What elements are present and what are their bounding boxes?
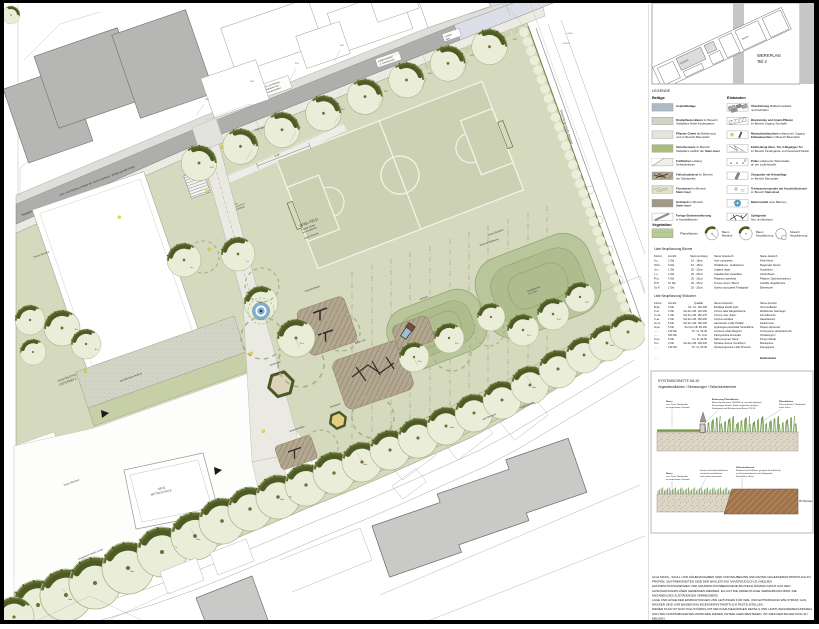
svg-text:Name botanisch: Name botanisch bbox=[714, 254, 734, 258]
svg-text:C.ma.: C.ma. bbox=[654, 313, 661, 317]
svg-text:Pr.P.: Pr.P. bbox=[210, 167, 215, 169]
svg-text:neu: 10cm Oberboden: neu: 10cm Oberboden bbox=[666, 403, 689, 406]
svg-text:2 Stk: 2 Stk bbox=[668, 317, 675, 321]
svg-text:SYSTEMSCHNITTE M1:20: SYSTEMSCHNITTE M1:20 bbox=[658, 379, 699, 383]
svg-text:Immergrüne Heckenkirsche: Immergrüne Heckenkirsche bbox=[760, 329, 792, 333]
svg-text:und im Bereich Baumplatz: und im Bereich Baumplatz bbox=[676, 135, 710, 139]
svg-text:+412.0: +412.0 bbox=[566, 33, 574, 35]
svg-text:4 Stk: 4 Stk bbox=[668, 309, 675, 313]
svg-text:GRUNDSTÜCKSGRENZEN UND GRU: GRUNDSTÜCKSGRENZEN UND GRUNDSTÜCKSBEZOGE… bbox=[652, 584, 790, 588]
svg-text:Obst: Obst bbox=[363, 463, 368, 466]
svg-text:Pachysandra terminalis: Pachysandra terminalis bbox=[714, 333, 742, 337]
svg-text:5 Stk: 5 Stk bbox=[668, 321, 675, 325]
svg-text:in Asphaltflächen: in Asphaltflächen bbox=[676, 217, 698, 221]
svg-text:im verdichteten Zustand: im verdichteten Zustand bbox=[666, 406, 690, 409]
svg-text:Gebäudekante: Gebäudekante bbox=[676, 163, 695, 167]
svg-text:und Fahrräder: und Fahrräder bbox=[751, 108, 769, 112]
svg-text:Einbauleuchten im Bereich Baum: Einbauleuchten im Bereich Baumplatz bbox=[751, 135, 800, 139]
svg-text:Sol.3xv.mB. 150-175: Sol.3xv.mB. 150-175 bbox=[683, 313, 707, 317]
svg-text:PRÜFEN; UNSTIMMIGKEITEN SIND D: PRÜFEN; UNSTIMMIGKEITEN SIND DER BAULEIT… bbox=[652, 580, 773, 584]
svg-text:Pr.P.: Pr.P. bbox=[250, 81, 255, 83]
svg-text:Platanus acerifolia: Platanus acerifolia bbox=[714, 277, 736, 281]
svg-text:16 - 18cm: 16 - 18cm bbox=[691, 259, 704, 263]
svg-text:an der Laufenstraße: an der Laufenstraße bbox=[751, 163, 777, 167]
svg-text:vor Hand nacharbeiten: vor Hand nacharbeiten bbox=[700, 472, 723, 475]
svg-text:Ju.r.: Ju.r. bbox=[654, 268, 659, 272]
svg-text:A.c.: A.c. bbox=[654, 259, 659, 263]
svg-text:im Bereich Kindergarten und Fe: im Bereich Kindergarten und Feuerwehrzuf… bbox=[751, 149, 809, 153]
svg-text:Qualität: Qualität bbox=[694, 301, 703, 305]
svg-text:Friesenräger Einbau, Beton ang: Friesenräger Einbau, Beton angleichig ve… bbox=[712, 404, 759, 407]
svg-text:Stein-Insel: Stein-Insel bbox=[676, 204, 691, 208]
svg-text:Stellplätze Nähe Kindergarten: Stellplätze Nähe Kindergarten bbox=[676, 122, 715, 126]
svg-text:Pl.a.: Pl.a. bbox=[455, 343, 459, 345]
svg-text:der Spielgeräte: der Spielgeräte bbox=[676, 176, 696, 180]
svg-text:Bodendecker: Bodendecker bbox=[760, 356, 776, 360]
svg-text:Obst: Obst bbox=[68, 598, 73, 601]
svg-text:Kürzel: Kürzel bbox=[654, 254, 662, 258]
svg-text:mind. 40cm: mind. 40cm bbox=[779, 407, 790, 409]
svg-text:Neu und Bestand: Neu und Bestand bbox=[751, 217, 773, 221]
svg-text:So.F.: So.F. bbox=[654, 286, 660, 290]
svg-text:ALLE MASS-, SACH- UND HÖHENANG: ALLE MASS-, SACH- UND HÖHENANGABEN SIND … bbox=[652, 575, 811, 579]
svg-text:B.da.: B.da. bbox=[654, 305, 660, 309]
svg-text:H.mo.: H.mo. bbox=[654, 321, 661, 325]
svg-text:20 - 25cm: 20 - 25cm bbox=[691, 281, 704, 285]
svg-text:Eberesche: Eberesche bbox=[760, 286, 773, 290]
svg-text:Fundament und Rückenstütze Bet: Fundament und Rückenstütze Beton C12/15 bbox=[712, 407, 756, 410]
svg-text:Anzahl: Anzahl bbox=[668, 301, 676, 305]
svg-text:Vegetation: Vegetation bbox=[652, 222, 672, 227]
svg-text:ANGABEN DES ZUSTÄNDIGEN VERMES: ANGABEN DES ZUSTÄNDIGEN VERMESSERS. bbox=[652, 593, 719, 597]
svg-text:1 Stk: 1 Stk bbox=[668, 268, 675, 272]
svg-text:H.pa.: H.pa. bbox=[654, 325, 660, 329]
svg-text:Pr.P.: Pr.P. bbox=[557, 319, 562, 321]
svg-text:Stammumfang: Stammumfang bbox=[690, 254, 708, 258]
svg-text:Rasen: Rasen bbox=[666, 473, 673, 475]
svg-text:LEGENDE: LEGENDE bbox=[652, 89, 671, 93]
svg-text:Obst: Obst bbox=[532, 386, 537, 389]
svg-text:Obst: Obst bbox=[450, 426, 455, 429]
svg-text:L.s.: L.s. bbox=[246, 261, 250, 263]
svg-text:Neupflanzung: Neupflanzung bbox=[756, 233, 774, 237]
svg-text:neu: 10cm Oberboden: neu: 10cm Oberboden bbox=[666, 475, 689, 478]
svg-text:3 Stk: 3 Stk bbox=[668, 341, 675, 345]
svg-text:......: ...... bbox=[654, 357, 659, 360]
svg-text:Name deutsch: Name deutsch bbox=[760, 301, 777, 305]
svg-text:20 - 25cm: 20 - 25cm bbox=[691, 272, 704, 276]
svg-text:Juglans regia: Juglans regia bbox=[714, 268, 730, 272]
svg-text:2 Stk: 2 Stk bbox=[668, 259, 675, 263]
svg-text:16 Stk: 16 Stk bbox=[668, 281, 676, 285]
svg-text:Einfassung Pflanzflächen: Einfassung Pflanzflächen bbox=[712, 399, 739, 401]
svg-text:Stellplätze südlich der Stein-: Stellplätze südlich der Stein-Insel bbox=[676, 149, 720, 153]
svg-text:Buddleja davidii Hybr.: Buddleja davidii Hybr. bbox=[714, 305, 739, 309]
svg-text:C.av.: C.av. bbox=[654, 317, 660, 321]
svg-text:500 Stk: 500 Stk bbox=[668, 333, 677, 337]
svg-text:Acer campestre: Acer campestre bbox=[714, 259, 733, 263]
svg-text:20 - 25cm: 20 - 25cm bbox=[691, 286, 704, 290]
svg-text:Zwergspiere: Zwergspiere bbox=[760, 345, 775, 349]
svg-text:Spiraea japonica 'Little Princ: Spiraea japonica 'Little Princess' bbox=[714, 345, 752, 349]
svg-text:......: ...... bbox=[654, 346, 659, 349]
svg-text:Rasen: Rasen bbox=[666, 401, 673, 403]
svg-text:L.s.: L.s. bbox=[654, 272, 659, 276]
svg-text:Vegetationsflächen / Einfassun: Vegetationsflächen / Einfassungen / Fall… bbox=[658, 385, 736, 389]
svg-text:Spiraea cinerea 'Grefsheim': Spiraea cinerea 'Grefsheim' bbox=[714, 341, 746, 345]
svg-text:Tb. 9-11: Tb. 9-11 bbox=[698, 333, 708, 337]
svg-text:im Bereich Zugang Turnhalle: im Bereich Zugang Turnhalle bbox=[751, 122, 787, 126]
svg-text:im Bereich Stein-Insel: im Bereich Stein-Insel bbox=[751, 190, 779, 194]
svg-text:Pflanzflächen: Pflanzflächen bbox=[779, 401, 794, 403]
svg-text:6 Stk: 6 Stk bbox=[668, 263, 675, 267]
svg-text:2 Stk: 2 Stk bbox=[668, 272, 675, 276]
svg-text:Corylus avellana: Corylus avellana bbox=[714, 317, 734, 321]
svg-text:Name deutsch: Name deutsch bbox=[760, 254, 778, 258]
svg-text:Beton Kantensteine 100/25/5cm,: Beton Kantensteine 100/25/5cm, einseitig… bbox=[712, 401, 762, 404]
svg-text:Ju.r.: Ju.r. bbox=[190, 267, 194, 269]
svg-text:130 Stk: 130 Stk bbox=[668, 345, 677, 349]
svg-text:Feld-Ahorn: Feld-Ahorn bbox=[760, 259, 774, 263]
svg-text:A.c.: A.c. bbox=[75, 328, 79, 331]
svg-text:Sol.3xv.mB. 80-100: Sol.3xv.mB. 80-100 bbox=[685, 325, 708, 329]
svg-text:Pr.P.: Pr.P. bbox=[297, 127, 302, 129]
svg-text:A.c.: A.c. bbox=[95, 348, 99, 351]
svg-text:Obst: Obst bbox=[610, 344, 615, 347]
svg-text:Pr.P.: Pr.P. bbox=[384, 91, 389, 93]
svg-text:S.ci.: S.ci. bbox=[654, 341, 659, 345]
svg-text:Sorbus aucuparia 'Fastigiata': Sorbus aucuparia 'Fastigiata' bbox=[714, 286, 749, 290]
svg-text:Bäumrondell unter Bäumen: Bäumrondell unter Bäumen bbox=[751, 200, 787, 204]
svg-text:Schattengrün: Schattengrün bbox=[760, 333, 776, 337]
svg-text:Asphaltbeläge: Asphaltbeläge bbox=[676, 104, 696, 108]
svg-text:im Bereich Baumplatz: im Bereich Baumplatz bbox=[751, 176, 779, 180]
svg-text:MELDEN.: MELDEN. bbox=[652, 616, 666, 620]
svg-text:Platane, Dachhochstamm: Platane, Dachhochstamm bbox=[760, 277, 792, 281]
svg-text:Brautspiere: Brautspiere bbox=[760, 341, 774, 345]
svg-text:Cornus alba 'Elegantissima': Cornus alba 'Elegantissima' bbox=[714, 309, 746, 313]
svg-text:Pl.a.: Pl.a. bbox=[654, 277, 660, 281]
svg-text:Sol.3xv.mB. 150-200: Sol.3xv.mB. 150-200 bbox=[683, 317, 707, 321]
svg-text:Tb. 11, 30-40: Tb. 11, 30-40 bbox=[692, 329, 708, 333]
svg-text:Weißbunter Hartriegel: Weißbunter Hartriegel bbox=[760, 309, 786, 313]
svg-text:WASSER SIND VOR BAUBEGINN EIGE: WASSER SIND VOR BAUBEGINN EIGENVERANTWOR… bbox=[652, 603, 764, 607]
svg-text:im Sicherheitsbereich der Spie: im Sicherheitsbereich der Spielgeräte, bbox=[736, 472, 773, 475]
svg-text:C.al.: C.al. bbox=[654, 309, 660, 313]
svg-text:Pl.a.: Pl.a. bbox=[300, 343, 304, 345]
svg-text:Pr.P.: Pr.P. bbox=[340, 45, 345, 47]
svg-text:Pr.P.: Pr.P. bbox=[205, 99, 210, 101]
svg-text:Obst: Obst bbox=[196, 538, 201, 541]
svg-text:Liquidambar styraciflua: Liquidambar styraciflua bbox=[714, 272, 742, 276]
svg-text:5 Stk: 5 Stk bbox=[668, 325, 675, 329]
svg-text:Pr.P.: Pr.P. bbox=[513, 39, 518, 41]
svg-text:Pl.a.: Pl.a. bbox=[527, 335, 531, 337]
svg-text:Hamamelis mollis 'Pallida': Hamamelis mollis 'Pallida' bbox=[714, 321, 744, 325]
svg-text:Nussbaum: Nussbaum bbox=[760, 268, 774, 272]
svg-text:......: ...... bbox=[654, 334, 659, 337]
svg-text:Purpur-Weide: Purpur-Weide bbox=[760, 337, 777, 341]
svg-text:Pflanzflächen: Pflanzflächen bbox=[680, 231, 698, 235]
svg-text:......: ...... bbox=[654, 330, 659, 333]
svg-text:2 Stk: 2 Stk bbox=[668, 286, 675, 290]
svg-text:LAGE UND HÖHE DER EINRICHTUNGE: LAGE UND HÖHE DER EINRICHTUNGEN UND LEIT… bbox=[652, 598, 807, 602]
svg-text:Fallschutzbereich: Fallschutzbereich bbox=[736, 466, 755, 469]
svg-text:Salix purpurea 'Nana': Salix purpurea 'Nana' bbox=[714, 337, 739, 341]
svg-text:Kanten der Fallschutzflächen: Kanten der Fallschutzflächen bbox=[700, 469, 729, 472]
svg-text:4 Stk: 4 Stk bbox=[668, 277, 675, 281]
svg-text:Schütthöhe: 40cm: Schütthöhe: 40cm bbox=[736, 475, 754, 478]
svg-text:Obst: Obst bbox=[130, 570, 135, 573]
svg-text:3 Stk: 3 Stk bbox=[668, 305, 675, 309]
svg-text:20 - 25cm: 20 - 25cm bbox=[691, 277, 704, 281]
svg-text:Pr.P.: Pr.P. bbox=[585, 302, 590, 304]
svg-text:Pr.P.: Pr.P. bbox=[295, 63, 300, 65]
svg-text:Prunus avium 'Plena': Prunus avium 'Plena' bbox=[714, 281, 740, 285]
svg-text:Teil 2: Teil 2 bbox=[757, 59, 767, 64]
svg-text:Sol.3xv.mB. 100-125: Sol.3xv.mB. 100-125 bbox=[683, 321, 707, 325]
svg-text:AUSFÜHRUNGSPLÄNEN GEMESSEN WER: AUSFÜHRUNGSPLÄNEN GEMESSEN WERDEN. ES GI… bbox=[652, 589, 797, 593]
svg-text:Lonicera nitida 'Maigrün': Lonicera nitida 'Maigrün' bbox=[714, 329, 742, 333]
svg-text:Co. 3l, 40-60: Co. 3l, 40-60 bbox=[692, 337, 707, 341]
svg-text:Liste Neupflanzung Sträucher: Liste Neupflanzung Sträucher bbox=[654, 294, 697, 298]
svg-text:Pr.P.: Pr.P. bbox=[428, 73, 433, 75]
svg-text:SOLLTEN UNSTIMMIGKEITEN ZWISCH: SOLLTEN UNSTIMMIGKEITEN ZWISCHEN DIESEN … bbox=[652, 612, 808, 616]
svg-text:Pr.P.: Pr.P. bbox=[341, 109, 346, 111]
svg-text:Rispen-Hortensie: Rispen-Hortensie bbox=[760, 325, 781, 329]
svg-text:Stein-Insel: Stein-Insel bbox=[676, 190, 691, 194]
svg-text:Pl.a.: Pl.a. bbox=[418, 361, 422, 363]
svg-text:Einbauten: Einbauten bbox=[727, 95, 746, 100]
svg-text:Kürzel: Kürzel bbox=[654, 301, 662, 305]
svg-text:Obstbäume - Halbstamm: Obstbäume - Halbstamm bbox=[714, 263, 745, 267]
svg-text:Liste Neupflanzung Bäume: Liste Neupflanzung Bäume bbox=[654, 247, 693, 251]
svg-text:Bestand: Bestand bbox=[722, 233, 733, 237]
svg-text:Haselstrauch: Haselstrauch bbox=[760, 317, 776, 321]
svg-text:130 Stk: 130 Stk bbox=[668, 329, 677, 333]
svg-text:Zaubernuss: Zaubernuss bbox=[760, 321, 774, 325]
svg-text:Kornelkirsche: Kornelkirsche bbox=[760, 313, 776, 317]
svg-text:Regionale Sorten: Regionale Sorten bbox=[760, 263, 781, 267]
svg-text:Name botanisch: Name botanisch bbox=[714, 301, 733, 305]
svg-text:im verdichteten Zustand: im verdichteten Zustand bbox=[666, 478, 690, 481]
svg-text:Obst: Obst bbox=[280, 498, 285, 501]
svg-text:9 Stk: 9 Stk bbox=[668, 337, 675, 341]
svg-text:Rindenschrot 0-80mm, geeignet: Rindenschrot 0-80mm, geeignet für Fallsc… bbox=[736, 469, 781, 472]
svg-text:Sol.3xv.mB. 100-125: Sol.3xv.mB. 100-125 bbox=[683, 341, 707, 345]
svg-text:Pr.P.: Pr.P. bbox=[654, 281, 660, 285]
svg-text:Beläge: Beläge bbox=[652, 95, 666, 100]
svg-text:Neupflanzung: Neupflanzung bbox=[790, 233, 808, 237]
svg-text:Anzahl: Anzahl bbox=[668, 254, 677, 258]
svg-text:Sol.3xv.mB. 125-150: Sol.3xv.mB. 125-150 bbox=[683, 309, 707, 313]
svg-text:Amberbaum: Amberbaum bbox=[760, 272, 775, 276]
svg-text:DIESER PLAN IST NUR VOLLSTÄNDI: DIESER PLAN IST NUR VOLLSTÄNDIG MIT DEN … bbox=[652, 607, 813, 611]
svg-text:Sommerflieder: Sommerflieder bbox=[760, 305, 777, 309]
svg-text:WERKPLAN: WERKPLAN bbox=[757, 53, 781, 58]
svg-text:Pflanzsubstrat / Oberboden: Pflanzsubstrat / Oberboden bbox=[779, 403, 806, 406]
svg-text:Tb. 11, 25-30: Tb. 11, 25-30 bbox=[692, 345, 708, 349]
svg-text:16 - 18cm: 16 - 18cm bbox=[691, 263, 704, 267]
svg-text:Pr.P.: Pr.P. bbox=[253, 145, 258, 147]
svg-text:Str. Co. 100-125: Str. Co. 100-125 bbox=[688, 305, 707, 309]
svg-text:Gefüllte Vogelkirsche: Gefüllte Vogelkirsche bbox=[760, 281, 786, 285]
svg-text:Hydrangea paniculata 'Grandifl: Hydrangea paniculata 'Grandiflora' bbox=[714, 325, 754, 329]
svg-text:PP-Filtervlies: PP-Filtervlies bbox=[799, 500, 813, 503]
svg-text:S.pu.: S.pu. bbox=[654, 337, 660, 341]
svg-text:20 - 25cm: 20 - 25cm bbox=[691, 268, 704, 272]
svg-text:Pr.P.: Pr.P. bbox=[470, 55, 475, 57]
svg-text:Obst: Obst bbox=[654, 263, 660, 267]
svg-text:und sauber abstechen: und sauber abstechen bbox=[700, 475, 722, 478]
svg-text:Cornus mas 'Jolico': Cornus mas 'Jolico' bbox=[714, 313, 737, 317]
svg-text:1 Stk: 1 Stk bbox=[668, 313, 675, 317]
